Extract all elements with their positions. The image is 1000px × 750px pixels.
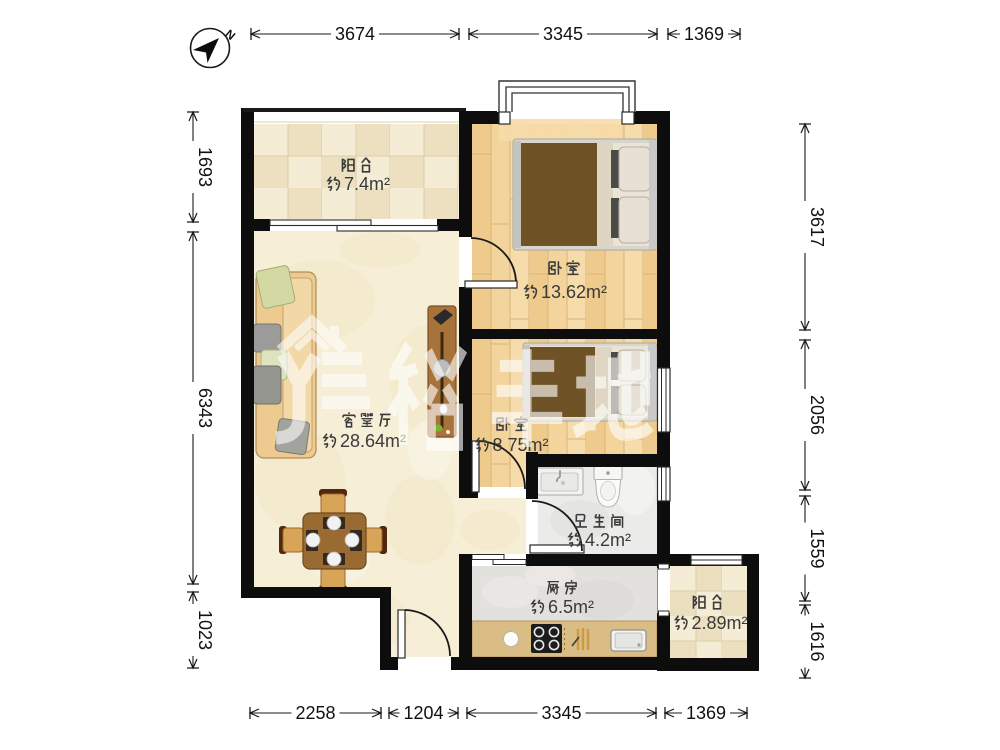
svg-text:2.89m²: 2.89m² bbox=[692, 613, 748, 633]
svg-text:6.5m²: 6.5m² bbox=[548, 597, 594, 617]
svg-text:13.62m²: 13.62m² bbox=[541, 282, 607, 302]
svg-text:3617: 3617 bbox=[807, 207, 827, 247]
svg-text:28.64m²: 28.64m² bbox=[340, 431, 406, 451]
svg-text:1693: 1693 bbox=[195, 147, 215, 187]
svg-text:1023: 1023 bbox=[195, 610, 215, 650]
svg-text:1559: 1559 bbox=[807, 528, 827, 568]
svg-text:2258: 2258 bbox=[295, 703, 335, 723]
svg-text:3345: 3345 bbox=[541, 703, 581, 723]
svg-text:2056: 2056 bbox=[807, 395, 827, 435]
svg-text:4.2m²: 4.2m² bbox=[585, 530, 631, 550]
svg-text:3345: 3345 bbox=[543, 24, 583, 44]
svg-text:1616: 1616 bbox=[807, 621, 827, 661]
svg-text:3674: 3674 bbox=[335, 24, 375, 44]
svg-text:8.75m²: 8.75m² bbox=[493, 435, 549, 455]
svg-text:1369: 1369 bbox=[684, 24, 724, 44]
svg-text:1369: 1369 bbox=[686, 703, 726, 723]
svg-text:6343: 6343 bbox=[195, 388, 215, 428]
svg-text:7.4m²: 7.4m² bbox=[344, 174, 390, 194]
svg-text:1204: 1204 bbox=[403, 703, 443, 723]
